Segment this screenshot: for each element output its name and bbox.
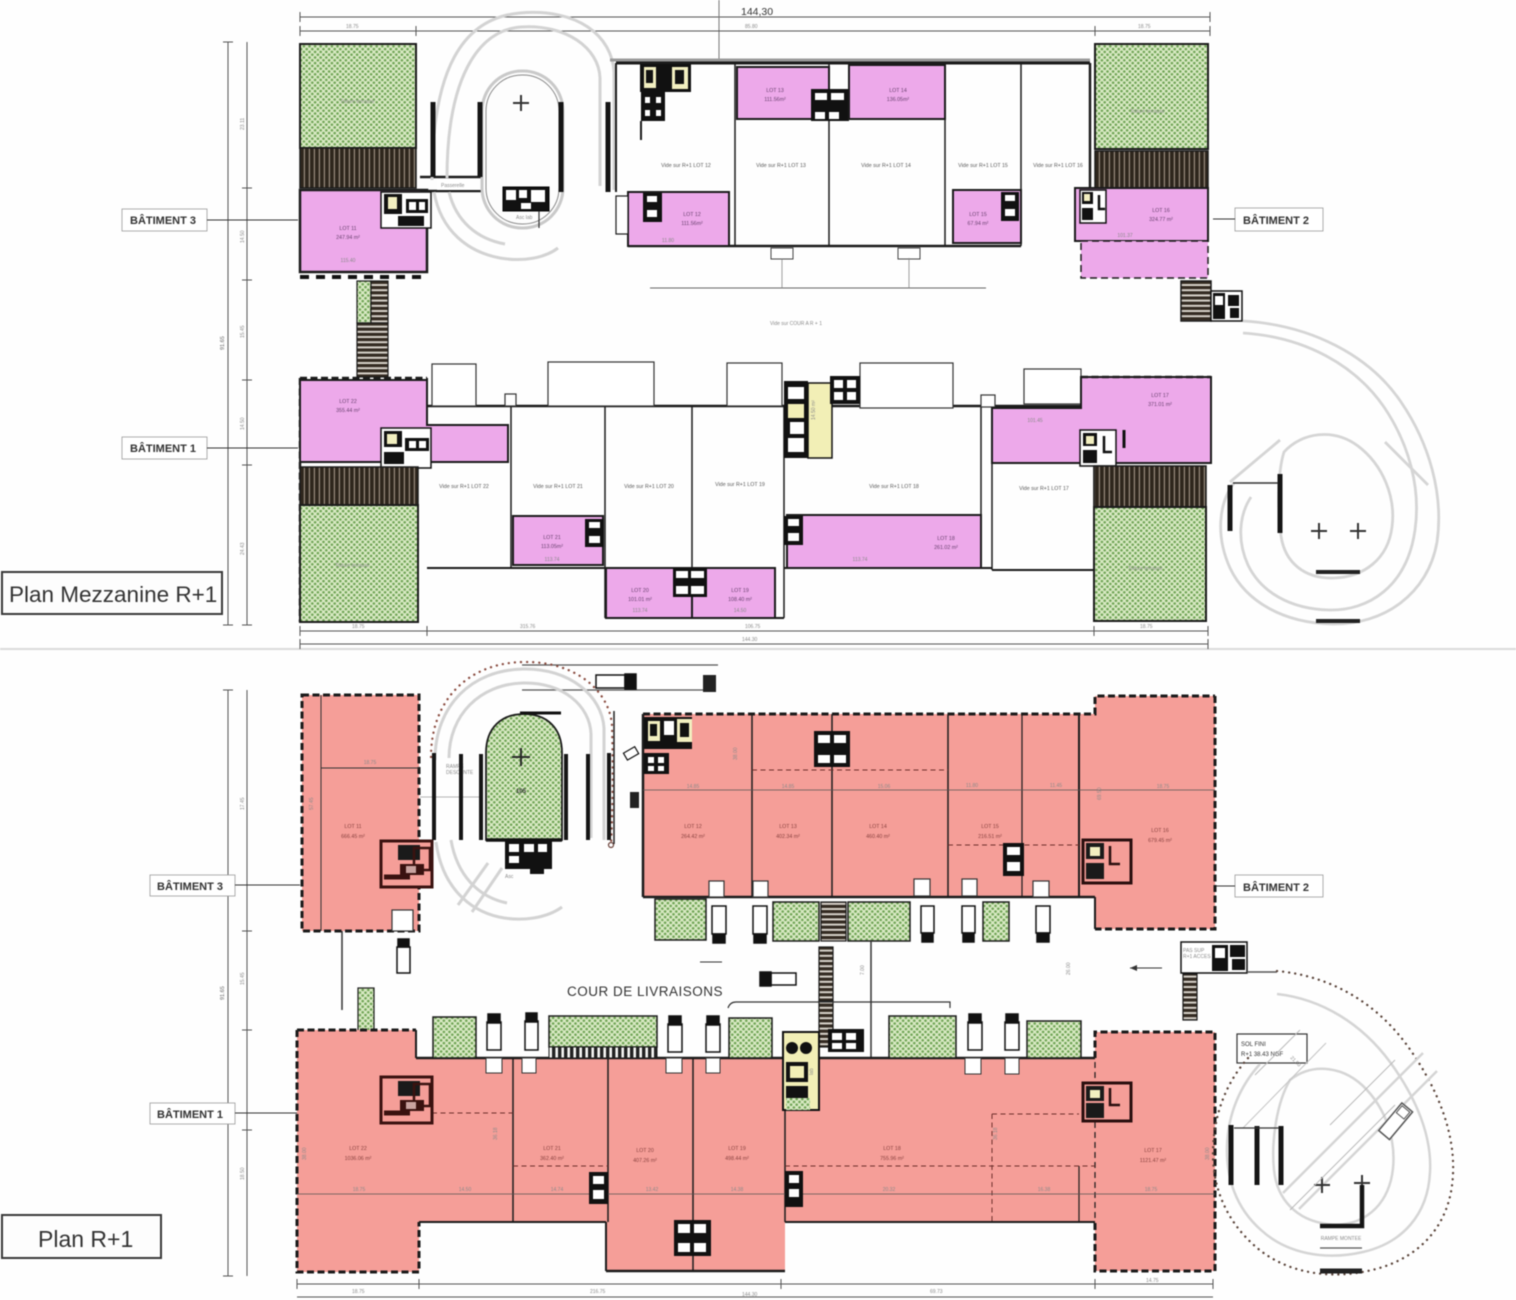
svg-text:136.05m²: 136.05m² — [887, 97, 910, 103]
svg-text:Vide sur R+1 LOT 18: Vide sur R+1 LOT 18 — [869, 484, 919, 490]
svg-text:LOT 16: LOT 16 — [1152, 208, 1170, 214]
svg-text:Vide sur R+1 LOT 15: Vide sur R+1 LOT 15 — [958, 163, 1008, 169]
svg-text:264.42 m²: 264.42 m² — [681, 834, 705, 840]
svg-text:371.01 m²: 371.01 m² — [1148, 402, 1172, 408]
svg-text:14.38: 14.38 — [731, 1187, 744, 1193]
svg-text:15.06: 15.06 — [878, 784, 891, 790]
svg-text:LOT 13: LOT 13 — [779, 824, 797, 830]
svg-text:LOT 15: LOT 15 — [969, 212, 987, 218]
svg-text:18.75: 18.75 — [346, 24, 359, 30]
svg-text:Toiture terrasse: Toiture terrasse — [1130, 109, 1165, 115]
svg-text:144.30: 144.30 — [742, 637, 758, 643]
svg-text:Vide sur R+1 LOT 14: Vide sur R+1 LOT 14 — [861, 163, 911, 169]
svg-text:111.56m²: 111.56m² — [764, 97, 786, 103]
svg-text:7.00: 7.00 — [860, 965, 866, 975]
svg-text:18.75: 18.75 — [364, 760, 377, 766]
svg-text:Plan R+1: Plan R+1 — [38, 1226, 133, 1252]
svg-text:14.50: 14.50 — [734, 608, 747, 614]
svg-text:17.45: 17.45 — [240, 797, 246, 810]
svg-text:LOT 17: LOT 17 — [1144, 1148, 1162, 1154]
svg-text:18.75: 18.75 — [1140, 624, 1153, 630]
svg-text:LOT 18: LOT 18 — [883, 1146, 901, 1152]
svg-text:105: 105 — [516, 789, 527, 795]
svg-text:Vide sur R+1 LOT 17: Vide sur R+1 LOT 17 — [1019, 486, 1069, 492]
svg-text:14.50: 14.50 — [459, 1187, 472, 1193]
svg-text:261.02 m²: 261.02 m² — [934, 545, 958, 551]
svg-text:LOT 17: LOT 17 — [1151, 393, 1169, 399]
svg-text:14.85: 14.85 — [782, 784, 795, 790]
svg-text:247.94 m²: 247.94 m² — [336, 235, 360, 241]
svg-text:15.45: 15.45 — [240, 972, 246, 985]
svg-text:38.00: 38.00 — [1205, 1147, 1211, 1160]
svg-text:26.00: 26.00 — [1066, 962, 1072, 975]
svg-text:SOL FINI: SOL FINI — [1241, 1042, 1266, 1048]
svg-text:Toiture terrasse: Toiture terrasse — [335, 563, 370, 569]
svg-text:Vide sur R+1 LOT 21: Vide sur R+1 LOT 21 — [533, 484, 583, 490]
svg-text:111.56m²: 111.56m² — [681, 221, 703, 227]
svg-text:LOT 21: LOT 21 — [543, 1146, 561, 1152]
svg-text:15.45: 15.45 — [240, 325, 246, 338]
svg-text:460.40 m²: 460.40 m² — [866, 834, 890, 840]
svg-text:11.80: 11.80 — [662, 238, 674, 244]
svg-text:LOT 16: LOT 16 — [1151, 828, 1169, 834]
svg-text:36.18: 36.18 — [993, 1127, 999, 1140]
svg-text:113.74: 113.74 — [633, 608, 648, 614]
svg-text:18.75: 18.75 — [352, 1289, 365, 1295]
svg-text:91.65: 91.65 — [220, 336, 226, 350]
svg-text:BÂTIMENT 2: BÂTIMENT 2 — [1243, 881, 1309, 894]
svg-text:LOT 15: LOT 15 — [981, 824, 999, 830]
svg-text:Vide sur COUR A R + 1: Vide sur COUR A R + 1 — [770, 321, 822, 327]
svg-text:11.80: 11.80 — [966, 783, 978, 789]
svg-text:402.34 m²: 402.34 m² — [776, 834, 800, 840]
svg-text:LOT 12: LOT 12 — [684, 824, 702, 830]
svg-text:BÂTIMENT 3: BÂTIMENT 3 — [157, 880, 223, 893]
svg-text:Plan Mezzanine R+1: Plan Mezzanine R+1 — [9, 582, 217, 607]
svg-text:18.75: 18.75 — [1145, 1187, 1158, 1193]
svg-text:108.40 m²: 108.40 m² — [728, 597, 752, 603]
svg-text:LOT 19: LOT 19 — [731, 588, 749, 594]
svg-text:Vide sur R+1 LOT 19: Vide sur R+1 LOT 19 — [715, 482, 765, 488]
svg-text:Passerelle: Passerelle — [441, 183, 465, 189]
svg-text:101.37: 101.37 — [1117, 233, 1133, 239]
svg-text:18.75: 18.75 — [353, 1187, 366, 1193]
svg-text:13.42: 13.42 — [646, 1187, 659, 1193]
svg-text:216.75: 216.75 — [590, 1289, 606, 1295]
svg-text:Toiture terrasse: Toiture terrasse — [340, 99, 375, 105]
svg-text:69.50: 69.50 — [1097, 787, 1103, 800]
svg-text:14.50 m²: 14.50 m² — [811, 400, 817, 420]
svg-text:Vide sur R+1 LOT 13: Vide sur R+1 LOT 13 — [756, 163, 806, 169]
svg-text:106.75: 106.75 — [745, 624, 761, 630]
svg-text:101.01 m²: 101.01 m² — [628, 597, 652, 603]
svg-text:679.45 m²: 679.45 m² — [1148, 838, 1172, 844]
svg-text:18.75: 18.75 — [352, 624, 365, 630]
svg-text:101.45: 101.45 — [1027, 418, 1043, 424]
svg-text:14.50: 14.50 — [240, 230, 246, 243]
svg-text:Vide sur R+1 LOT 20: Vide sur R+1 LOT 20 — [624, 484, 674, 490]
svg-text:BÂTIMENT 1: BÂTIMENT 1 — [157, 1108, 223, 1121]
svg-text:BÂTIMENT 1: BÂTIMENT 1 — [130, 442, 196, 455]
svg-text:LOT 20: LOT 20 — [636, 1148, 654, 1154]
svg-text:24.43: 24.43 — [240, 542, 246, 555]
svg-text:Vide sur R+1 LOT 12: Vide sur R+1 LOT 12 — [661, 163, 711, 169]
svg-text:LOT 13: LOT 13 — [766, 88, 784, 94]
svg-text:LOT 22: LOT 22 — [349, 1146, 367, 1152]
svg-text:LOT 14: LOT 14 — [869, 824, 887, 830]
svg-text:11.45: 11.45 — [1050, 783, 1062, 789]
svg-text:LOT 11: LOT 11 — [339, 226, 356, 232]
svg-text:LOT 14: LOT 14 — [889, 88, 907, 94]
svg-text:18.50: 18.50 — [240, 1167, 246, 1180]
svg-text:324.77 m²: 324.77 m² — [1149, 217, 1173, 223]
svg-text:LOT 18: LOT 18 — [937, 536, 955, 542]
svg-text:85.80: 85.80 — [745, 24, 758, 30]
svg-text:144.30: 144.30 — [742, 1292, 758, 1298]
svg-text:115.40: 115.40 — [341, 258, 356, 264]
svg-text:113.05m²: 113.05m² — [541, 544, 563, 550]
svg-text:lab: lab — [809, 1068, 815, 1075]
svg-text:23.11: 23.11 — [240, 118, 246, 130]
svg-text:Vide sur R+1 LOT 22: Vide sur R+1 LOT 22 — [439, 484, 489, 490]
svg-text:1121.47 m²: 1121.47 m² — [1140, 1158, 1167, 1164]
svg-text:666.45 m²: 666.45 m² — [341, 834, 365, 840]
svg-text:Asc lab: Asc lab — [516, 215, 533, 221]
svg-text:16.38: 16.38 — [1038, 1187, 1051, 1193]
svg-text:20.32: 20.32 — [883, 1187, 896, 1193]
svg-text:113.74: 113.74 — [545, 557, 560, 563]
svg-text:14.74: 14.74 — [551, 1187, 564, 1193]
svg-text:38.00: 38.00 — [302, 1147, 308, 1160]
svg-text:144,30: 144,30 — [741, 6, 773, 18]
svg-text:LOT 21: LOT 21 — [543, 535, 561, 541]
svg-text:362.40 m²: 362.40 m² — [540, 1156, 564, 1162]
svg-text:LOT 12: LOT 12 — [683, 212, 701, 218]
svg-text:216.51 m²: 216.51 m² — [978, 834, 1002, 840]
svg-text:67.94 m²: 67.94 m² — [968, 221, 989, 227]
svg-text:113.74: 113.74 — [853, 557, 868, 563]
svg-text:57.45: 57.45 — [309, 797, 315, 810]
svg-text:RAMPE MONTEE: RAMPE MONTEE — [1321, 1236, 1362, 1242]
svg-text:69.73: 69.73 — [930, 1289, 943, 1295]
svg-text:14.85: 14.85 — [687, 784, 700, 790]
svg-text:755.96 m²: 755.96 m² — [880, 1156, 904, 1162]
svg-text:Toiture terrasse: Toiture terrasse — [1128, 566, 1163, 572]
svg-text:BÂTIMENT 2: BÂTIMENT 2 — [1243, 214, 1309, 227]
svg-text:18.75: 18.75 — [1157, 784, 1170, 790]
svg-text:1036.06 m²: 1036.06 m² — [345, 1156, 372, 1162]
svg-text:407.26 m²: 407.26 m² — [633, 1158, 657, 1164]
svg-text:315.76: 315.76 — [520, 624, 536, 630]
svg-text:498.44 m²: 498.44 m² — [725, 1156, 749, 1162]
svg-text:18.75: 18.75 — [1138, 24, 1151, 30]
svg-text:14.50: 14.50 — [240, 417, 246, 430]
svg-text:38.00: 38.00 — [733, 747, 739, 760]
svg-text:BÂTIMENT 3: BÂTIMENT 3 — [130, 214, 196, 227]
svg-text:Vide sur R+1 LOT 16: Vide sur R+1 LOT 16 — [1033, 163, 1083, 169]
svg-text:LOT 11: LOT 11 — [344, 824, 361, 830]
svg-text:R+1 ACCES: R+1 ACCES — [1183, 954, 1211, 960]
svg-text:LOT 19: LOT 19 — [728, 1146, 746, 1152]
svg-text:Asc: Asc — [505, 874, 514, 880]
svg-text:LOT 22: LOT 22 — [339, 399, 357, 405]
svg-text:91.65: 91.65 — [220, 986, 226, 1000]
svg-text:36.18: 36.18 — [493, 1127, 499, 1140]
svg-text:14.75: 14.75 — [1146, 1278, 1159, 1284]
svg-text:LOT 20: LOT 20 — [631, 588, 649, 594]
svg-text:COUR DE LIVRAISONS: COUR DE LIVRAISONS — [567, 984, 723, 999]
svg-text:355.44 m²: 355.44 m² — [336, 408, 360, 414]
